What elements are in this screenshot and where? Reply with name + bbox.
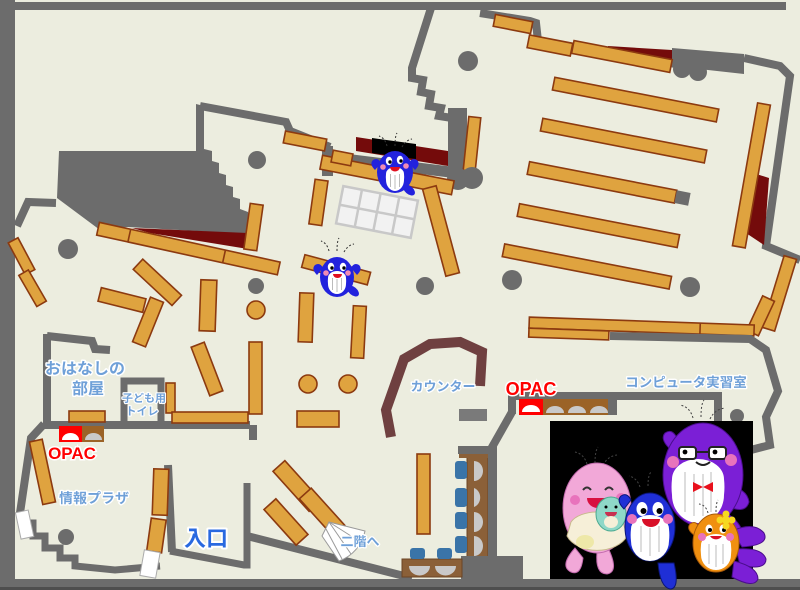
- svg-text:OPAC: OPAC: [48, 444, 96, 463]
- svg-text:OPAC: OPAC: [506, 379, 557, 399]
